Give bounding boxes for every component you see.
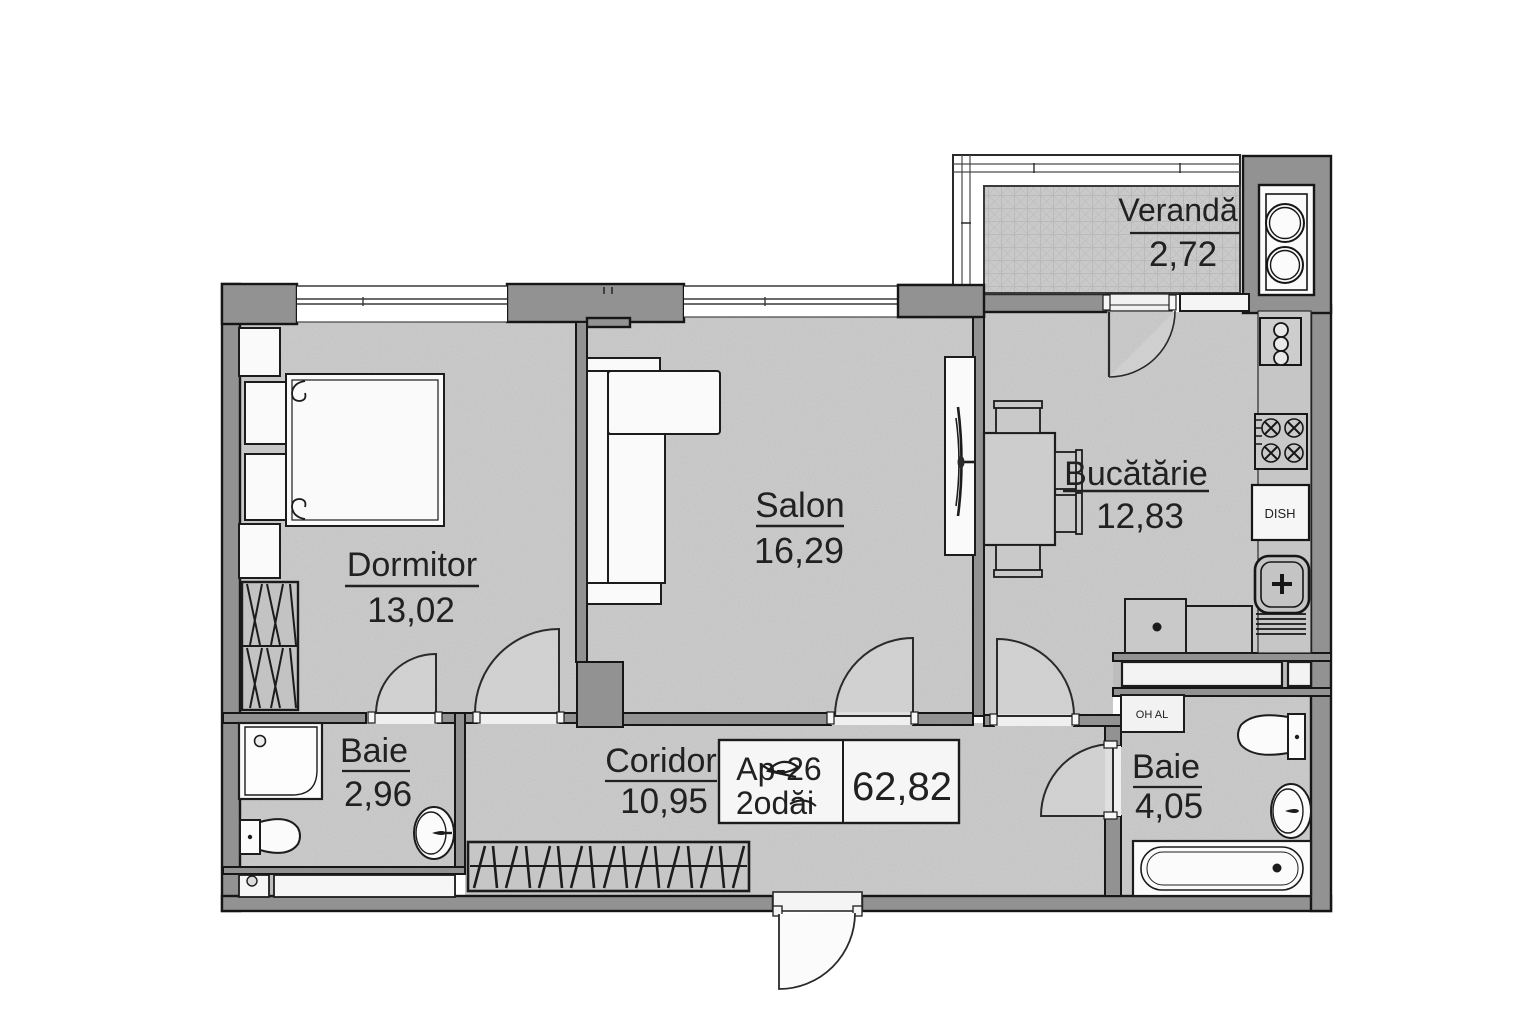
svg-text:DISH: DISH (1264, 506, 1295, 521)
svg-text:Salon: Salon (755, 486, 845, 525)
svg-text:Baie: Baie (340, 732, 408, 770)
svg-text:2,72: 2,72 (1149, 235, 1217, 274)
svg-text:12,83: 12,83 (1096, 497, 1184, 536)
svg-text:Bucătărie: Bucătărie (1064, 455, 1208, 493)
svg-text:2,96: 2,96 (344, 775, 412, 814)
svg-text:Verandă: Verandă (1118, 192, 1237, 228)
svg-text:Dormitor: Dormitor (347, 546, 477, 584)
svg-text:16,29: 16,29 (754, 530, 844, 571)
svg-text:4,05: 4,05 (1135, 787, 1203, 826)
svg-text:10,95: 10,95 (620, 782, 708, 821)
svg-text:62,82: 62,82 (852, 765, 952, 809)
svg-text:Ap-26: Ap-26 (736, 751, 821, 787)
svg-text:Baie: Baie (1132, 748, 1200, 786)
svg-text:13,02: 13,02 (367, 591, 455, 630)
svg-text:OH AL: OH AL (1136, 709, 1168, 721)
svg-text:2odăi: 2odăi (736, 785, 814, 821)
svg-text:Coridor: Coridor (605, 742, 716, 780)
